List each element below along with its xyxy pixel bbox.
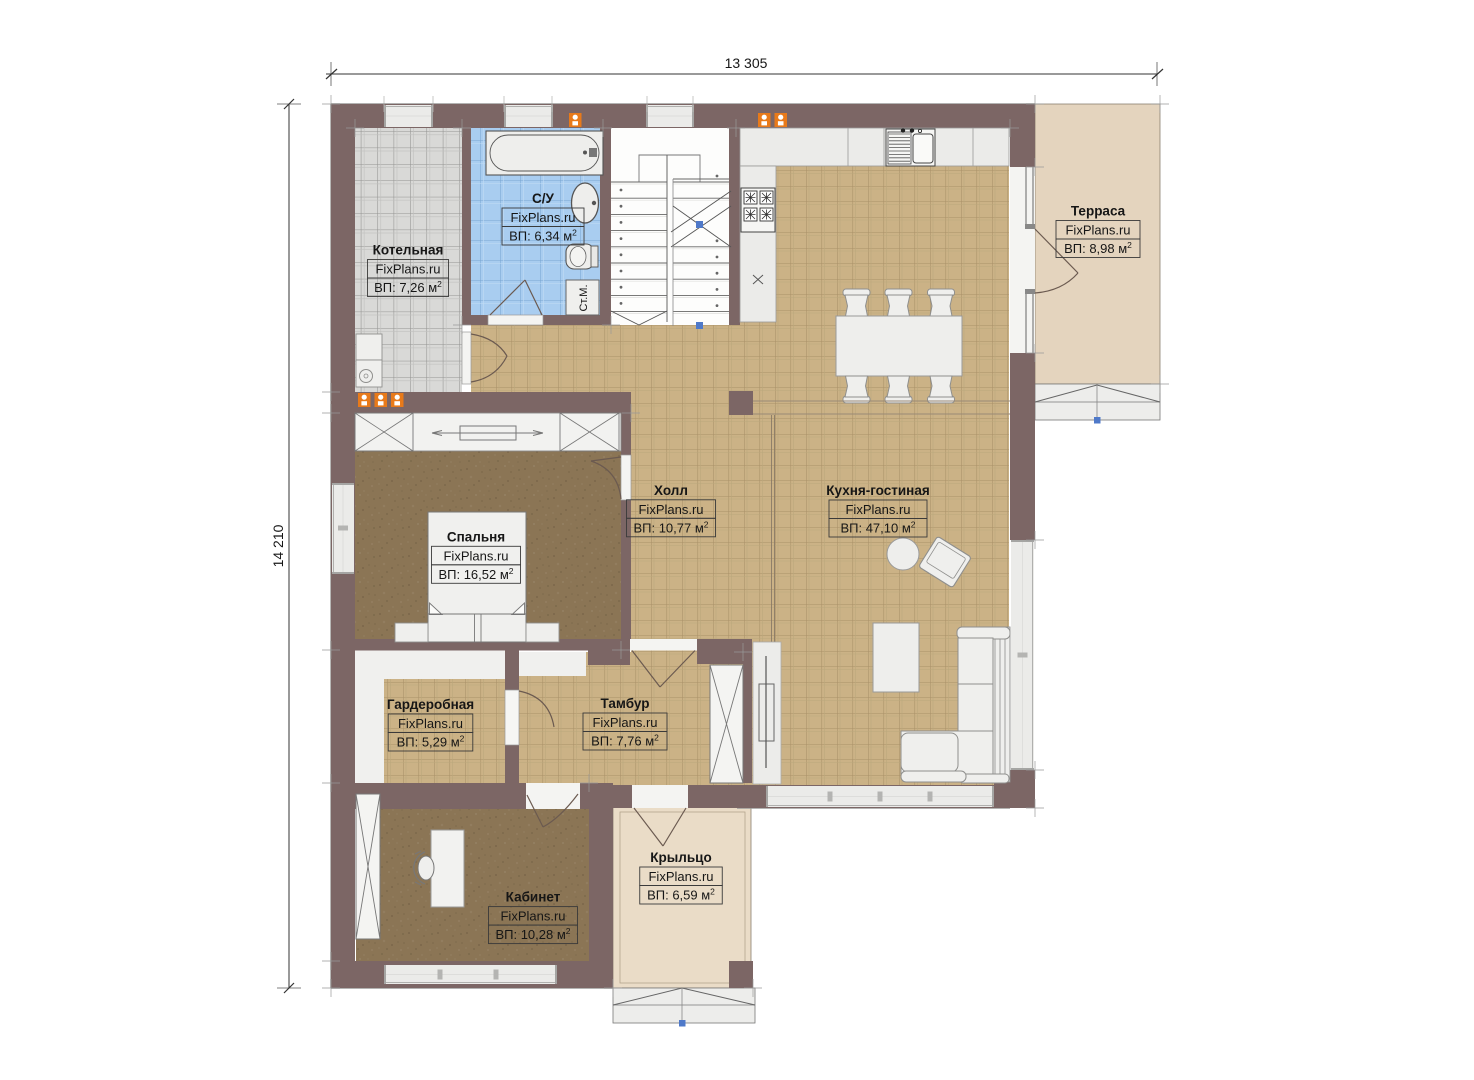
svg-text:Ст.М.: Ст.М. [578,284,590,311]
svg-text:FixPlans.ru: FixPlans.ru [1065,223,1130,238]
svg-text:ВП: 8,98 м2: ВП: 8,98 м2 [1064,240,1132,256]
svg-text:ВП: 16,52 м2: ВП: 16,52 м2 [438,566,513,582]
svg-text:14 210: 14 210 [270,524,286,567]
svg-text:Терраса: Терраса [1071,204,1126,219]
svg-text:Крыльцо: Крыльцо [650,850,711,865]
svg-text:Кабинет: Кабинет [506,890,561,905]
svg-text:Гардеробная: Гардеробная [387,697,474,712]
svg-text:Кухня-гостиная: Кухня-гостиная [826,483,929,498]
svg-text:Котельная: Котельная [373,243,444,258]
svg-text:ВП: 6,59 м2: ВП: 6,59 м2 [647,887,715,903]
svg-text:ВП: 7,26 м2: ВП: 7,26 м2 [374,279,442,295]
svg-text:С/У: С/У [532,191,555,206]
svg-text:FixPlans.ru: FixPlans.ru [398,716,463,731]
svg-text:FixPlans.ru: FixPlans.ru [510,210,575,225]
svg-text:FixPlans.ru: FixPlans.ru [845,502,910,517]
svg-text:FixPlans.ru: FixPlans.ru [375,262,440,277]
svg-text:FixPlans.ru: FixPlans.ru [648,869,713,884]
svg-text:ВП: 10,77 м2: ВП: 10,77 м2 [633,519,708,535]
svg-text:Холл: Холл [654,483,688,498]
svg-text:ВП: 6,34 м2: ВП: 6,34 м2 [509,228,577,244]
svg-text:FixPlans.ru: FixPlans.ru [500,909,565,924]
svg-text:Тамбур: Тамбур [601,696,650,711]
svg-text:ВП: 10,28 м2: ВП: 10,28 м2 [495,926,570,942]
svg-text:ВП: 7,76 м2: ВП: 7,76 м2 [591,733,659,749]
svg-text:ВП: 5,29 м2: ВП: 5,29 м2 [397,734,465,750]
svg-text:FixPlans.ru: FixPlans.ru [638,502,703,517]
svg-text:FixPlans.ru: FixPlans.ru [592,715,657,730]
svg-text:ВП: 47,10 м2: ВП: 47,10 м2 [840,520,915,536]
svg-text:13 305: 13 305 [725,55,768,71]
svg-text:Спальня: Спальня [447,529,505,544]
svg-text:FixPlans.ru: FixPlans.ru [443,548,508,563]
